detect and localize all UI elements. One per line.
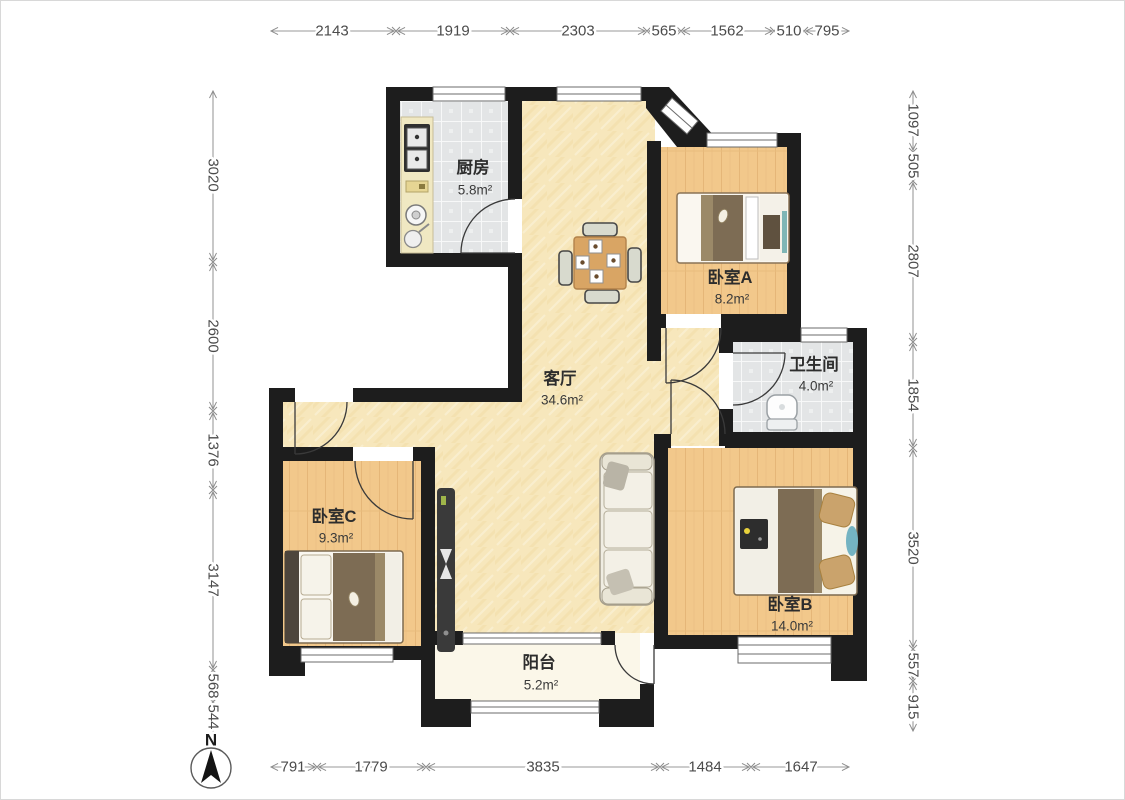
bedroomC-area: 9.3m² (319, 531, 354, 546)
bedroomC-bed (285, 551, 403, 643)
dim-top-1: 1919 (436, 23, 469, 40)
ruler-right: 1097 505 2807 1854 3520 557 915 (905, 91, 922, 731)
bedroomA-name: 卧室A (708, 267, 753, 287)
dim-left-5: 544 (205, 704, 222, 729)
dim-left-0: 3020 (205, 158, 222, 191)
bedroomA-bed (677, 193, 789, 263)
room-label-bedroomA: 卧室A 8.2m² (708, 267, 753, 307)
bathroom-area: 4.0m² (799, 379, 834, 394)
dim-left-1: 2600 (205, 319, 222, 352)
kitchen-counter (401, 117, 433, 253)
floorplan-canvas: 2143 1919 2303 565 1562 510 795 791 1779… (0, 0, 1125, 800)
kitchen-name: 厨房 (457, 157, 490, 177)
dim-right-4: 3520 (905, 531, 922, 564)
dim-right-0: 1097 (905, 103, 922, 136)
bedroomB-name: 卧室B (768, 594, 813, 614)
balcony-bottom-window (471, 701, 599, 713)
north-label: N (205, 731, 217, 750)
dim-left-3: 3147 (205, 563, 222, 596)
dim-bottom-3: 1484 (688, 759, 721, 776)
bedroomB-bed (734, 487, 858, 595)
north-indicator: N (191, 731, 231, 789)
bedroomC-name: 卧室C (312, 506, 357, 526)
bedroomA-window (707, 133, 777, 147)
balcony-area: 5.2m² (524, 678, 559, 693)
dim-bottom-2: 3835 (526, 759, 559, 776)
ruler-left: 3020 2600 1376 3147 568 544 (205, 91, 222, 731)
bedroomB-bay-window (738, 637, 831, 663)
dim-right-2: 2807 (905, 244, 922, 277)
dim-top-6: 795 (814, 23, 839, 40)
balcony-name: 阳台 (523, 652, 556, 672)
room-label-bedroomB: 卧室B 14.0m² (768, 594, 814, 634)
dim-top-5: 510 (776, 23, 801, 40)
dim-top-0: 2143 (315, 23, 348, 40)
bedroomB-area: 14.0m² (771, 619, 814, 634)
bathroom-toilet (767, 395, 797, 430)
dim-bottom-1: 1779 (354, 759, 387, 776)
living-name: 客厅 (543, 368, 578, 388)
bathroom-window (801, 328, 847, 342)
living-area: 34.6m² (541, 393, 584, 408)
balcony-slider-window (463, 633, 601, 644)
dim-left-4: 568 (205, 673, 222, 698)
dim-left-2: 1376 (205, 433, 222, 466)
living-top-window (557, 87, 641, 101)
kitchen-area: 5.8m² (458, 183, 493, 198)
dim-top-3: 565 (651, 23, 676, 40)
bedroomA-area: 8.2m² (715, 292, 750, 307)
sofa (600, 453, 654, 605)
kitchen-window (433, 87, 505, 101)
bathroom-name: 卫生间 (789, 354, 839, 374)
dim-right-3: 1854 (905, 378, 922, 411)
dim-right-1: 505 (905, 153, 922, 178)
bedroomC-window (301, 648, 393, 662)
tv-cabinet (437, 488, 455, 652)
dim-top-4: 1562 (710, 23, 743, 40)
dim-right-6: 915 (905, 694, 922, 719)
ruler-top: 2143 1919 2303 565 1562 510 795 (271, 23, 849, 40)
dim-bottom-0: 791 (280, 759, 305, 776)
dim-bottom-4: 1647 (784, 759, 817, 776)
ruler-bottom: 791 1779 3835 1484 1647 (271, 759, 849, 776)
dim-right-5: 557 (905, 652, 922, 677)
dim-top-2: 2303 (561, 23, 594, 40)
room-label-bedroomC: 卧室C 9.3m² (312, 506, 357, 546)
